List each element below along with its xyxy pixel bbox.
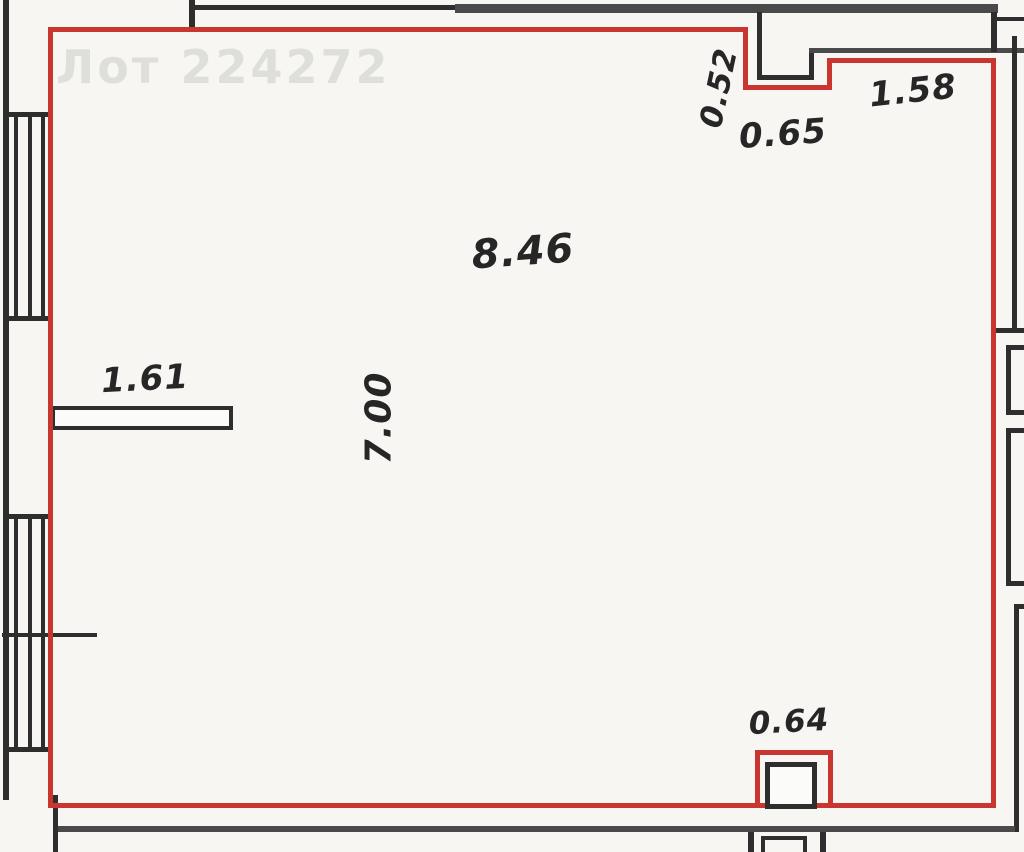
right-neighbor-floor-wall <box>994 328 1024 333</box>
dimension-label-1-58: 1.58 <box>867 67 959 116</box>
right-window-1-bottom <box>1006 410 1024 415</box>
window-1-glazing-line <box>14 114 18 319</box>
unit-notch-bottom <box>743 85 832 90</box>
partition-stub <box>51 406 233 430</box>
unit-wall-bottom <box>48 803 996 808</box>
top-wall-thin <box>189 5 455 10</box>
unit-bump-top <box>755 750 833 755</box>
bottom-door-jamb-left <box>748 832 754 852</box>
bottom-neighbor-wall <box>53 826 1015 832</box>
unit-wall-right <box>991 58 996 808</box>
right-lower-wall <box>1014 604 1019 832</box>
unit-bump-left <box>755 750 760 805</box>
right-window-1-side <box>1006 345 1011 415</box>
watermark-text: Лот 224272 <box>56 40 391 94</box>
right-window-2-bottom <box>1006 581 1024 586</box>
window-1-glazing-line <box>41 114 45 319</box>
top-right-edge-wall <box>997 17 1024 21</box>
top-notch-bottom-wall <box>757 75 814 80</box>
floor-plan: Лот 224272 8.46 7.00 1.61 0.52 0.65 1.58… <box>0 0 1024 852</box>
unit-wall-left <box>48 27 53 808</box>
room-area-label: 8.46 <box>470 225 576 278</box>
dimension-label-0-64: 0.64 <box>748 702 830 742</box>
dimension-label-7-00: 7.00 <box>359 372 400 465</box>
right-window-2-side <box>1006 428 1011 586</box>
unit-notch-left <box>743 27 748 90</box>
unit-wall-top-right <box>827 58 996 63</box>
window-2-bottom-sill <box>3 747 51 752</box>
unit-bump-right <box>828 750 833 805</box>
top-notch-right-wall <box>809 49 814 80</box>
window-1-bottom-sill <box>3 316 51 321</box>
dimension-label-0-65: 0.65 <box>738 111 828 157</box>
window-1-glazing-line <box>28 114 32 319</box>
bottom-door-leaf <box>761 836 807 852</box>
left-outer-wall <box>3 0 9 800</box>
dimension-label-1-61: 1.61 <box>100 357 190 402</box>
unit-wall-top <box>48 27 748 32</box>
column-square <box>765 762 817 809</box>
top-wall-thick <box>455 4 998 13</box>
right-neighbor-wall <box>1012 36 1017 332</box>
bottom-door-jamb-right <box>820 832 826 852</box>
top-notch-left-wall <box>757 12 762 80</box>
